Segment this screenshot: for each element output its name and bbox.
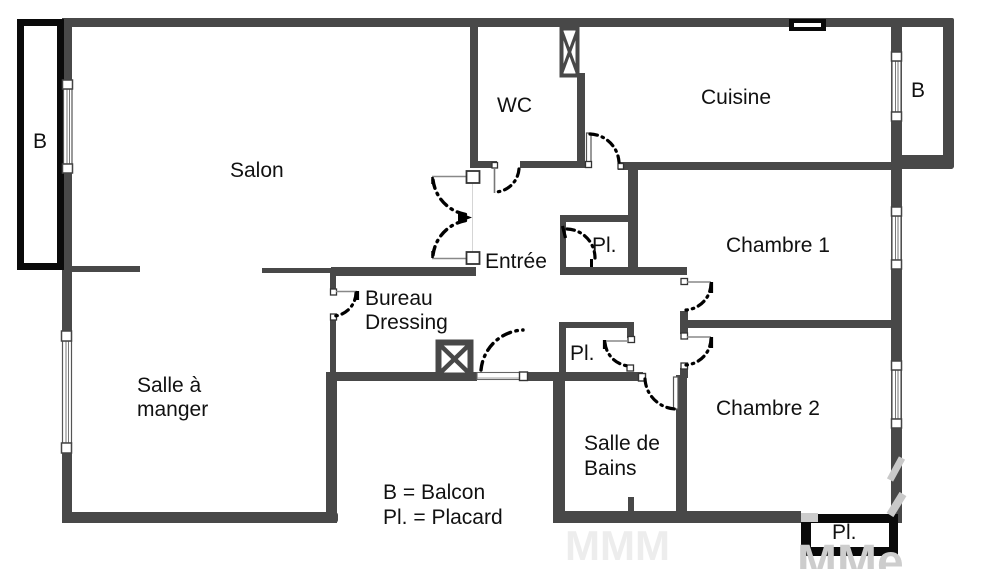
svg-text:Dressing: Dressing xyxy=(365,311,448,334)
svg-text:B = Balcon: B = Balcon xyxy=(383,481,485,504)
svg-text:Chambre 1: Chambre 1 xyxy=(726,234,830,257)
svg-text:B: B xyxy=(33,130,47,153)
svg-text:Pl. = Placard: Pl. = Placard xyxy=(383,506,503,529)
svg-text:Salle de: Salle de xyxy=(584,432,660,455)
svg-text:MMM: MMM xyxy=(565,522,670,569)
svg-text:Cuisine: Cuisine xyxy=(701,86,771,109)
svg-text:Pl.: Pl. xyxy=(832,521,857,544)
svg-text:Bains: Bains xyxy=(584,457,637,480)
svg-text:Pl.: Pl. xyxy=(592,234,617,257)
svg-text:WC: WC xyxy=(497,94,532,117)
svg-text:Salon: Salon xyxy=(230,159,284,182)
svg-text:Entrée: Entrée xyxy=(485,250,547,273)
svg-text:B: B xyxy=(911,79,925,102)
svg-text:manger: manger xyxy=(137,398,208,421)
svg-text:Salle à: Salle à xyxy=(137,374,202,397)
svg-text:Pl.: Pl. xyxy=(570,342,595,365)
svg-text:Bureau: Bureau xyxy=(365,287,433,310)
svg-text:Chambre 2: Chambre 2 xyxy=(716,397,820,420)
